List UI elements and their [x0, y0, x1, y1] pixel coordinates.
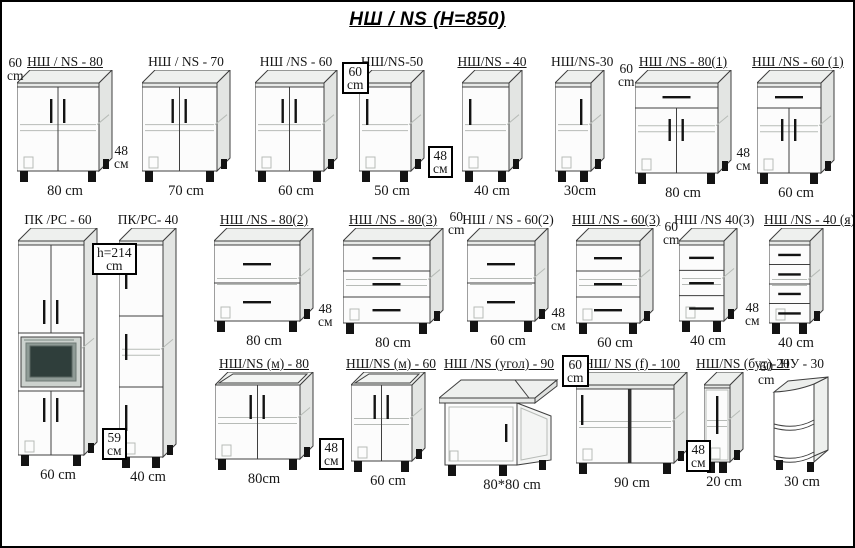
- cabinet-ns-80: НШ / NS - 8080 cm: [10, 54, 120, 199]
- width-label: 50 cm: [354, 184, 430, 199]
- dimension-annotation: 60cm: [663, 220, 680, 246]
- width-label: 40 cm: [114, 470, 182, 485]
- dimension-annotation: 60cm: [562, 355, 589, 387]
- dimension-annotation: 48см: [686, 440, 711, 472]
- dimension-text: см: [551, 318, 566, 333]
- cabinet-label: ПК/РС- 40: [114, 212, 182, 227]
- width-label: 60 cm: [248, 184, 344, 199]
- dimension-annotation: 48см: [736, 146, 751, 172]
- dimension-annotation: 59см: [102, 428, 127, 460]
- dimension-annotation: 60cm: [7, 56, 24, 82]
- dimension-text: см: [745, 313, 760, 328]
- cabinet-drawing: [674, 228, 742, 333]
- cabinet-label: ПК /РС - 60: [12, 212, 104, 227]
- width-label: 40 cm: [764, 336, 828, 351]
- dimension-annotation: 48см: [428, 146, 453, 178]
- cabinet-drawing: [210, 228, 318, 333]
- width-label: 60 cm: [752, 186, 840, 201]
- dimension-text: см: [107, 443, 122, 458]
- width-label: 80 cm: [338, 336, 448, 351]
- cabinet-drawing: [248, 70, 344, 183]
- cabinet-label: НШ /NS - 80(1): [630, 54, 736, 69]
- cabinet-ns-60: НШ /NS - 6060 cm: [248, 54, 344, 199]
- cabinet-label: НШ/ NS (f) - 100: [574, 356, 690, 371]
- width-label: 80 cm: [210, 334, 318, 349]
- cabinet-pk-rs-60: ПК /РС - 6060 cm: [12, 212, 104, 483]
- width-label: 60 cm: [572, 336, 658, 351]
- dimension-text: см: [114, 156, 129, 171]
- cabinet-drawing: [134, 70, 238, 183]
- width-label: 40 cm: [457, 184, 527, 199]
- cabinet-label: НШ /NS - 60(3): [572, 212, 658, 227]
- dimension-text: см: [736, 158, 751, 173]
- width-label: 80*80 cm: [438, 478, 560, 493]
- cabinet-ns-40-ya: НШ /NS - 40 (я)40 cm: [764, 212, 828, 351]
- cabinet-ns-m-60: НШ/NS (м) - 6060 cm: [346, 356, 430, 489]
- width-label: 80 cm: [10, 184, 120, 199]
- width-label: 70 cm: [134, 184, 238, 199]
- cabinet-drawing: [764, 228, 828, 335]
- cabinet-ns-70: НШ / NS - 7070 cm: [134, 54, 238, 199]
- cabinet-drawing: [10, 70, 120, 183]
- dimension-annotation: 48см: [319, 438, 344, 470]
- cabinet-label: НШ /NS - 60 (1): [752, 54, 840, 69]
- width-label: 60 cm: [462, 334, 554, 349]
- cabinet-nu-30: НУ - 3030 cm: [768, 356, 836, 490]
- dimension-text: cm: [347, 77, 364, 92]
- cabinet-drawing: [752, 70, 840, 185]
- dimension-text: см: [324, 453, 339, 468]
- cabinet-label: НШ / NS - 70: [134, 54, 238, 69]
- cabinet-drawing: [462, 228, 554, 333]
- cabinet-label: НШ/NS-30: [551, 54, 609, 69]
- dimension-annotation: 48см: [745, 301, 760, 327]
- width-label: 80 cm: [630, 186, 736, 201]
- cabinet-drawing: [457, 70, 527, 183]
- cabinet-label: НШ / NS - 80: [10, 54, 120, 69]
- cabinet-ns-m-80: НШ/NS (м) - 8080cm: [210, 356, 318, 487]
- dimension-annotation: 48см: [551, 306, 566, 332]
- cabinet-label: НШ /NS - 80(2): [210, 212, 318, 227]
- cabinet-drawing: [12, 228, 104, 467]
- dimension-annotation: 60cm: [342, 62, 369, 94]
- dimension-text: cm: [567, 370, 584, 385]
- cabinet-label: НШ /NS 40(3): [674, 212, 742, 227]
- width-label: 60 cm: [346, 474, 430, 489]
- width-label: 30cm: [551, 184, 609, 199]
- cabinet-ns-40-3: НШ /NS 40(3)40 cm: [674, 212, 742, 349]
- cabinet-drawing: [551, 70, 609, 183]
- catalog-page: НШ / NS (H=850) НШ / NS - 8080 cmНШ / NS…: [0, 0, 855, 548]
- width-label: 60 cm: [12, 468, 104, 483]
- cabinet-label: НШ / NS - 60(2): [462, 212, 554, 227]
- cabinet-label: НШ /NS (угол) - 90: [438, 356, 560, 371]
- cabinet-drawing: [346, 372, 430, 473]
- cabinet-drawing: [338, 228, 448, 335]
- cabinet-ns-60-2: НШ / NS - 60(2)60 cm: [462, 212, 554, 349]
- cabinet-drawing: [574, 372, 690, 475]
- cabinet-drawing: [768, 372, 836, 474]
- dimension-annotation: 60cm: [758, 360, 775, 386]
- cabinet-ns-60-3: НШ /NS - 60(3)60 cm: [572, 212, 658, 351]
- page-title: НШ / NS (H=850): [2, 9, 853, 31]
- dimension-text: см: [318, 314, 333, 329]
- cabinet-label: НШ /NS - 80(3): [338, 212, 448, 227]
- dimension-text: см: [691, 455, 706, 470]
- width-label: 30 cm: [768, 475, 836, 490]
- cabinet-ns-ugol-90: НШ /NS (угол) - 9080*80 cm: [438, 356, 560, 493]
- dimension-text: cm: [448, 222, 465, 237]
- cabinet-label: НШ /NS - 60: [248, 54, 344, 69]
- dimension-annotation: 48см: [318, 302, 333, 328]
- cabinet-drawing: [210, 372, 318, 471]
- dimension-text: cm: [663, 232, 680, 247]
- cabinet-label: НШ /NS - 40 (я): [764, 212, 828, 227]
- cabinet-label: НУ - 30: [768, 356, 836, 371]
- cabinet-label: НШ/NS - 40: [457, 54, 527, 69]
- width-label: 20 cm: [696, 475, 752, 490]
- cabinet-label: НШ/NS (бут)-20: [696, 356, 752, 371]
- dimension-text: cm: [7, 68, 24, 83]
- cabinet-ns-30: НШ/NS-3030cm: [551, 54, 609, 199]
- cabinet-ns-80-3: НШ /NS - 80(3)80 cm: [338, 212, 448, 351]
- dimension-text: см: [433, 161, 448, 176]
- dimension-text: cm: [106, 258, 123, 273]
- width-label: 90 cm: [574, 476, 690, 491]
- cabinet-label: НШ/NS (м) - 80: [210, 356, 318, 371]
- dimension-annotation: 48см: [114, 144, 129, 170]
- dimension-annotation: 60cm: [618, 62, 635, 88]
- cabinet-ns-f-100: НШ/ NS (f) - 10090 cm: [574, 356, 690, 491]
- dimension-text: cm: [618, 74, 635, 89]
- cabinet-ns-60-1: НШ /NS - 60 (1)60 cm: [752, 54, 840, 201]
- dimension-annotation: 60cm: [448, 210, 465, 236]
- width-label: 40 cm: [674, 334, 742, 349]
- dimension-annotation: h=214cm: [92, 243, 137, 275]
- cabinet-ns-40: НШ/NS - 4040 cm: [457, 54, 527, 199]
- cabinet-ns-80-1: НШ /NS - 80(1)80 cm: [630, 54, 736, 201]
- cabinet-drawing: [572, 228, 658, 335]
- cabinet-ns-80-2: НШ /NS - 80(2)80 cm: [210, 212, 318, 349]
- cabinet-drawing: [438, 372, 560, 477]
- width-label: 80cm: [210, 472, 318, 487]
- cabinet-drawing: [630, 70, 736, 185]
- dimension-text: cm: [758, 372, 775, 387]
- cabinet-label: НШ/NS (м) - 60: [346, 356, 430, 371]
